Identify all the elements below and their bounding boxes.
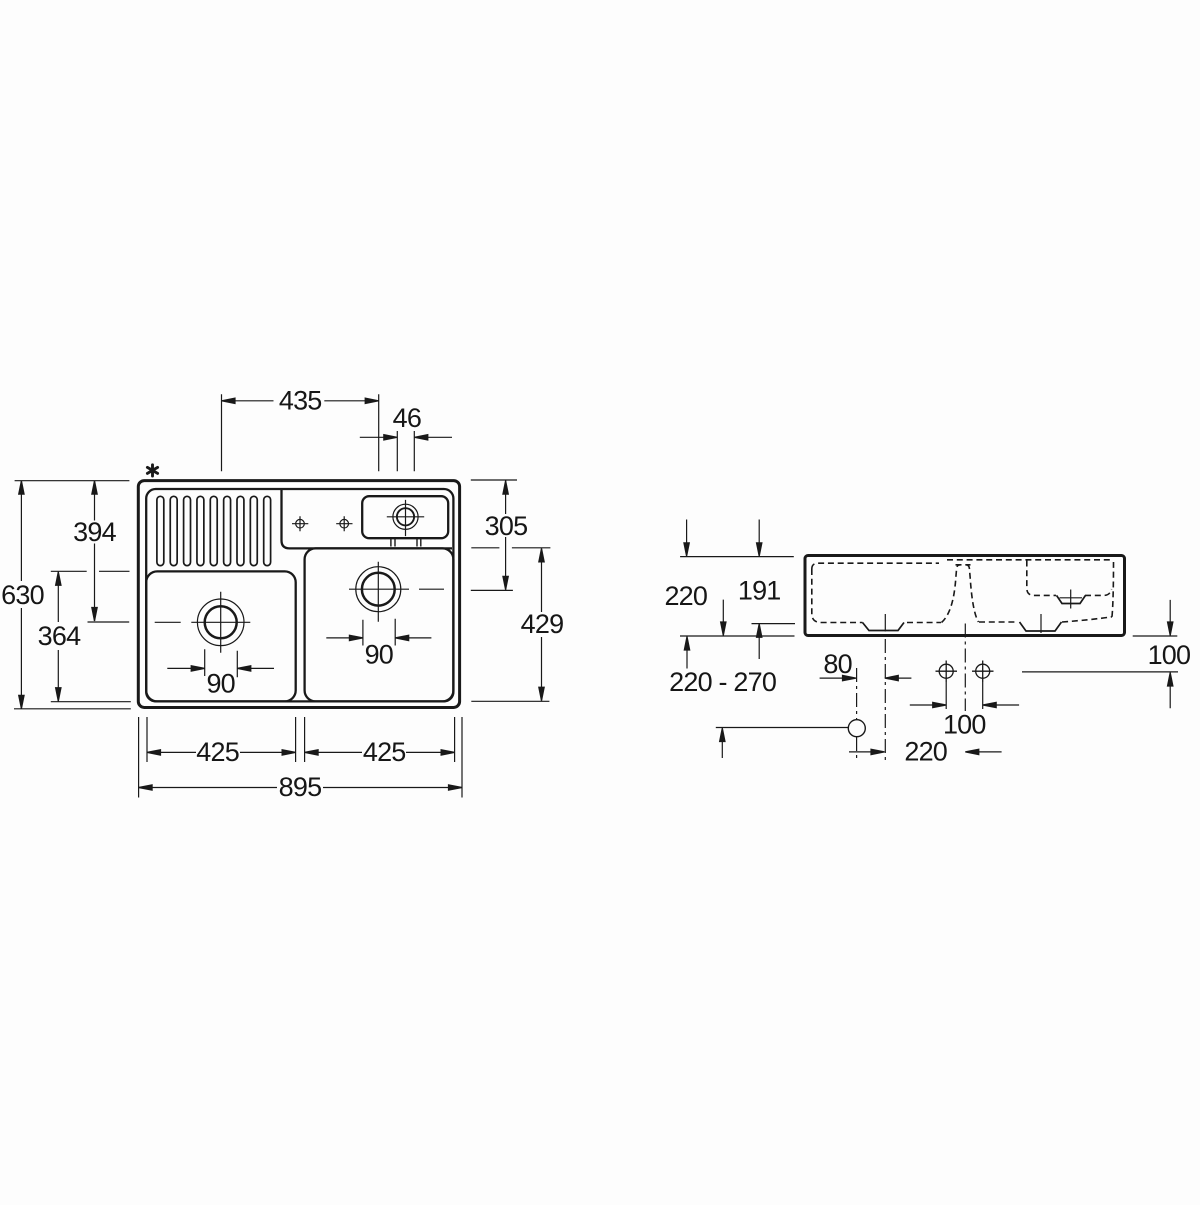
svg-text:90: 90: [206, 669, 234, 699]
svg-text:425: 425: [196, 737, 239, 767]
svg-text:80: 80: [823, 649, 851, 679]
svg-text:191: 191: [738, 576, 781, 606]
svg-text:435: 435: [279, 385, 322, 415]
svg-text:429: 429: [521, 609, 564, 639]
svg-text:90: 90: [365, 640, 393, 670]
svg-text:394: 394: [73, 517, 116, 547]
svg-text:305: 305: [485, 511, 528, 541]
svg-text:220: 220: [904, 737, 947, 767]
svg-text:100: 100: [1148, 640, 1191, 670]
svg-text:425: 425: [363, 737, 406, 767]
svg-text:100: 100: [943, 710, 986, 740]
svg-text:895: 895: [279, 772, 322, 802]
svg-text:46: 46: [393, 403, 421, 433]
svg-text:364: 364: [38, 621, 81, 651]
svg-text:220: 220: [664, 581, 707, 611]
svg-text:220 - 270: 220 - 270: [669, 667, 776, 697]
svg-text:630: 630: [1, 580, 44, 610]
